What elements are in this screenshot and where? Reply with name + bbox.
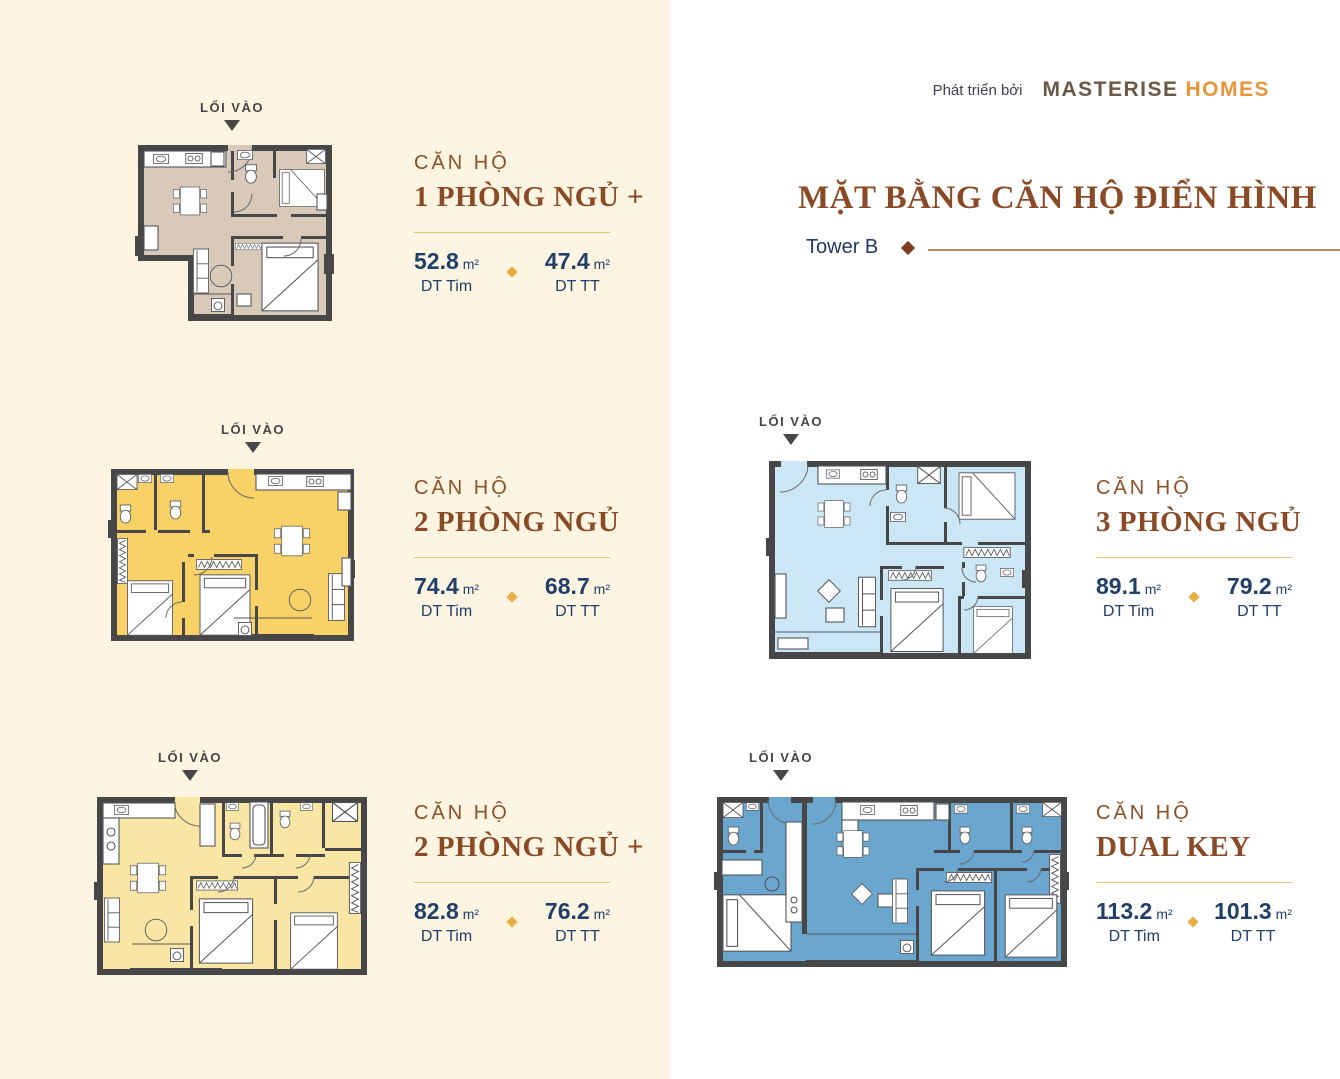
sofa	[193, 249, 208, 293]
diamond-separator-icon	[506, 266, 517, 277]
unit-name: 2 PHÒNG NGỦ +	[414, 831, 610, 864]
area-tt-value: 101.3	[1214, 898, 1272, 925]
area-unit: m²	[1276, 581, 1292, 597]
brand-name-secondary: HOMES	[1185, 78, 1270, 102]
area-row: 113.2m² DT Tim 101.3m² DT TT	[1096, 898, 1292, 946]
divider-line	[1096, 557, 1292, 558]
divider-line	[1096, 882, 1292, 883]
entrance-label: LỐI VÀO	[221, 422, 285, 437]
area-tim-caption: DT Tim	[1103, 603, 1154, 621]
main-entrance-opening	[813, 797, 835, 803]
entrance-opening	[228, 469, 254, 475]
sofa	[104, 898, 119, 942]
page-title: MẶT BẰNG CĂN HỘ ĐIỂN HÌNH	[798, 180, 1317, 217]
unit-info-3pn: CĂN HỘ 3 PHÒNG NGỦ 89.1m² DT Tim 79.2m² …	[1096, 477, 1292, 621]
area-tt-caption: DT TT	[555, 278, 600, 296]
area-row: 52.8m² DT Tim 47.4m² DT TT	[414, 248, 610, 296]
area-row: 89.1m² DT Tim 79.2m² DT TT	[1096, 573, 1292, 621]
unit-prefix-label: CĂN HỘ	[414, 477, 610, 500]
area-unit: m²	[594, 256, 610, 272]
subtitle-rule-line	[928, 249, 1340, 251]
unit-info-1pn-plus: CĂN HỘ 1 PHÒNG NGỦ + 52.8m² DT Tim 47.4m…	[414, 152, 610, 296]
area-tt-value: 79.2	[1227, 573, 1272, 600]
entrance-marker-unit4: LỐI VÀO	[731, 414, 851, 445]
unit-info-dual-key: CĂN HỘ DUAL KEY 113.2m² DT Tim 101.3m² D…	[1096, 802, 1292, 946]
floorplan-2-bedroom-plus	[92, 786, 372, 976]
hall-cabinet	[936, 804, 949, 820]
area-tt-value: 68.7	[545, 573, 590, 600]
area-tim-value: 52.8	[414, 248, 459, 275]
tv-cabinet	[342, 558, 351, 586]
area-tim: 89.1m² DT Tim	[1096, 573, 1161, 621]
area-tt: 47.4m² DT TT	[545, 248, 610, 296]
entrance-label: LỐI VÀO	[749, 750, 813, 765]
floorplan-2-bedroom	[106, 460, 359, 646]
brand-wordmark: MASTERISE HOMES	[1042, 78, 1270, 102]
area-tim-value: 89.1	[1096, 573, 1141, 600]
unit-prefix-label: CĂN HỘ	[1096, 802, 1292, 825]
area-tim-value: 74.4	[414, 573, 459, 600]
unit-prefix-label: CĂN HỘ	[414, 802, 610, 825]
area-row: 82.8m² DT Tim 76.2m² DT TT	[414, 898, 610, 946]
entrance-label: LỐI VÀO	[200, 100, 264, 115]
arrow-down-icon	[245, 442, 261, 453]
arrow-down-icon	[224, 120, 240, 131]
entrance-marker-unit2: LỐI VÀO	[193, 422, 313, 453]
area-tim-caption: DT Tim	[1109, 928, 1160, 946]
area-tt-value: 47.4	[545, 248, 590, 275]
area-unit: m²	[1276, 906, 1292, 922]
entrance-marker-unit1: LỐI VÀO	[172, 100, 292, 131]
developer-brand-row: Phát triển bởi MASTERISE HOMES	[970, 70, 1270, 110]
area-tim-caption: DT Tim	[421, 603, 472, 621]
area-tim: 82.8m² DT Tim	[414, 898, 479, 946]
divider-line	[414, 557, 610, 558]
area-tt-value: 76.2	[545, 898, 590, 925]
unit-info-2pn-plus: CĂN HỘ 2 PHÒNG NGỦ + 82.8m² DT Tim 76.2m…	[414, 802, 610, 946]
area-tim: 113.2m² DT Tim	[1096, 898, 1173, 946]
area-tim-value: 82.8	[414, 898, 459, 925]
entrance-label: LỐI VÀO	[759, 414, 823, 429]
floorplan-3-bedroom	[764, 450, 1036, 662]
area-row: 74.4m² DT Tim 68.7m² DT TT	[414, 573, 610, 621]
divider-line	[414, 232, 610, 233]
area-tt-caption: DT TT	[1231, 928, 1276, 946]
unit-name: 2 PHÒNG NGỦ	[414, 506, 610, 539]
arrow-down-icon	[182, 770, 198, 781]
area-tt: 76.2m² DT TT	[545, 898, 610, 946]
area-tt-caption: DT TT	[555, 928, 600, 946]
unit-name: 1 PHÒNG NGỦ +	[414, 181, 610, 214]
arrow-down-icon	[773, 770, 789, 781]
arrow-down-icon	[783, 434, 799, 445]
studio-entrance-opening	[769, 797, 791, 803]
area-tim-caption: DT Tim	[421, 928, 472, 946]
hall-cabinet	[200, 804, 215, 846]
unit-name: 3 PHÒNG NGỦ	[1096, 506, 1292, 539]
entrance-label: LỐI VÀO	[158, 750, 222, 765]
diamond-separator-icon	[506, 916, 517, 927]
area-tt: 101.3m² DT TT	[1214, 898, 1292, 946]
subtitle-diamond	[901, 241, 915, 255]
area-unit: m²	[1145, 581, 1161, 597]
area-tt: 68.7m² DT TT	[545, 573, 610, 621]
entrance-opening	[781, 461, 807, 467]
diamond-separator-icon	[1188, 916, 1199, 927]
unit-prefix-label: CĂN HỘ	[1096, 477, 1292, 500]
area-tim: 74.4m² DT Tim	[414, 573, 479, 621]
kitchen	[144, 151, 226, 167]
divider-line	[414, 882, 610, 883]
diamond-separator-icon	[1188, 591, 1199, 602]
area-unit: m²	[463, 906, 479, 922]
tower-subtitle: Tower B	[806, 236, 878, 259]
area-tim: 52.8m² DT Tim	[414, 248, 479, 296]
unit-name: DUAL KEY	[1096, 831, 1292, 864]
area-unit: m²	[594, 906, 610, 922]
unit-info-2pn: CĂN HỘ 2 PHÒNG NGỦ 74.4m² DT Tim 68.7m² …	[414, 477, 610, 621]
area-tt: 79.2m² DT TT	[1227, 573, 1292, 621]
cabinet	[144, 226, 158, 250]
entrance-marker-unit5: LỐI VÀO	[721, 750, 841, 781]
diamond-separator-icon	[506, 591, 517, 602]
area-tt-caption: DT TT	[555, 603, 600, 621]
shower-shaft	[333, 803, 358, 822]
unit-prefix-label: CĂN HỘ	[414, 152, 610, 175]
area-tt-caption: DT TT	[1237, 603, 1282, 621]
entrance-marker-unit3: LỐI VÀO	[130, 750, 250, 781]
kitchen	[818, 466, 886, 484]
entrance-opening	[175, 797, 200, 803]
area-unit: m²	[463, 581, 479, 597]
area-tim-value: 113.2	[1096, 898, 1152, 925]
brand-name-primary: MASTERISE	[1042, 78, 1178, 102]
developer-prefix-label: Phát triển bởi	[933, 82, 1023, 99]
floorplan-dual-key	[714, 788, 1070, 972]
area-unit: m²	[1156, 906, 1172, 922]
area-unit: m²	[594, 581, 610, 597]
area-unit: m²	[463, 256, 479, 272]
area-tim-caption: DT Tim	[421, 278, 472, 296]
floorplan-1-bedroom-plus	[133, 136, 337, 326]
